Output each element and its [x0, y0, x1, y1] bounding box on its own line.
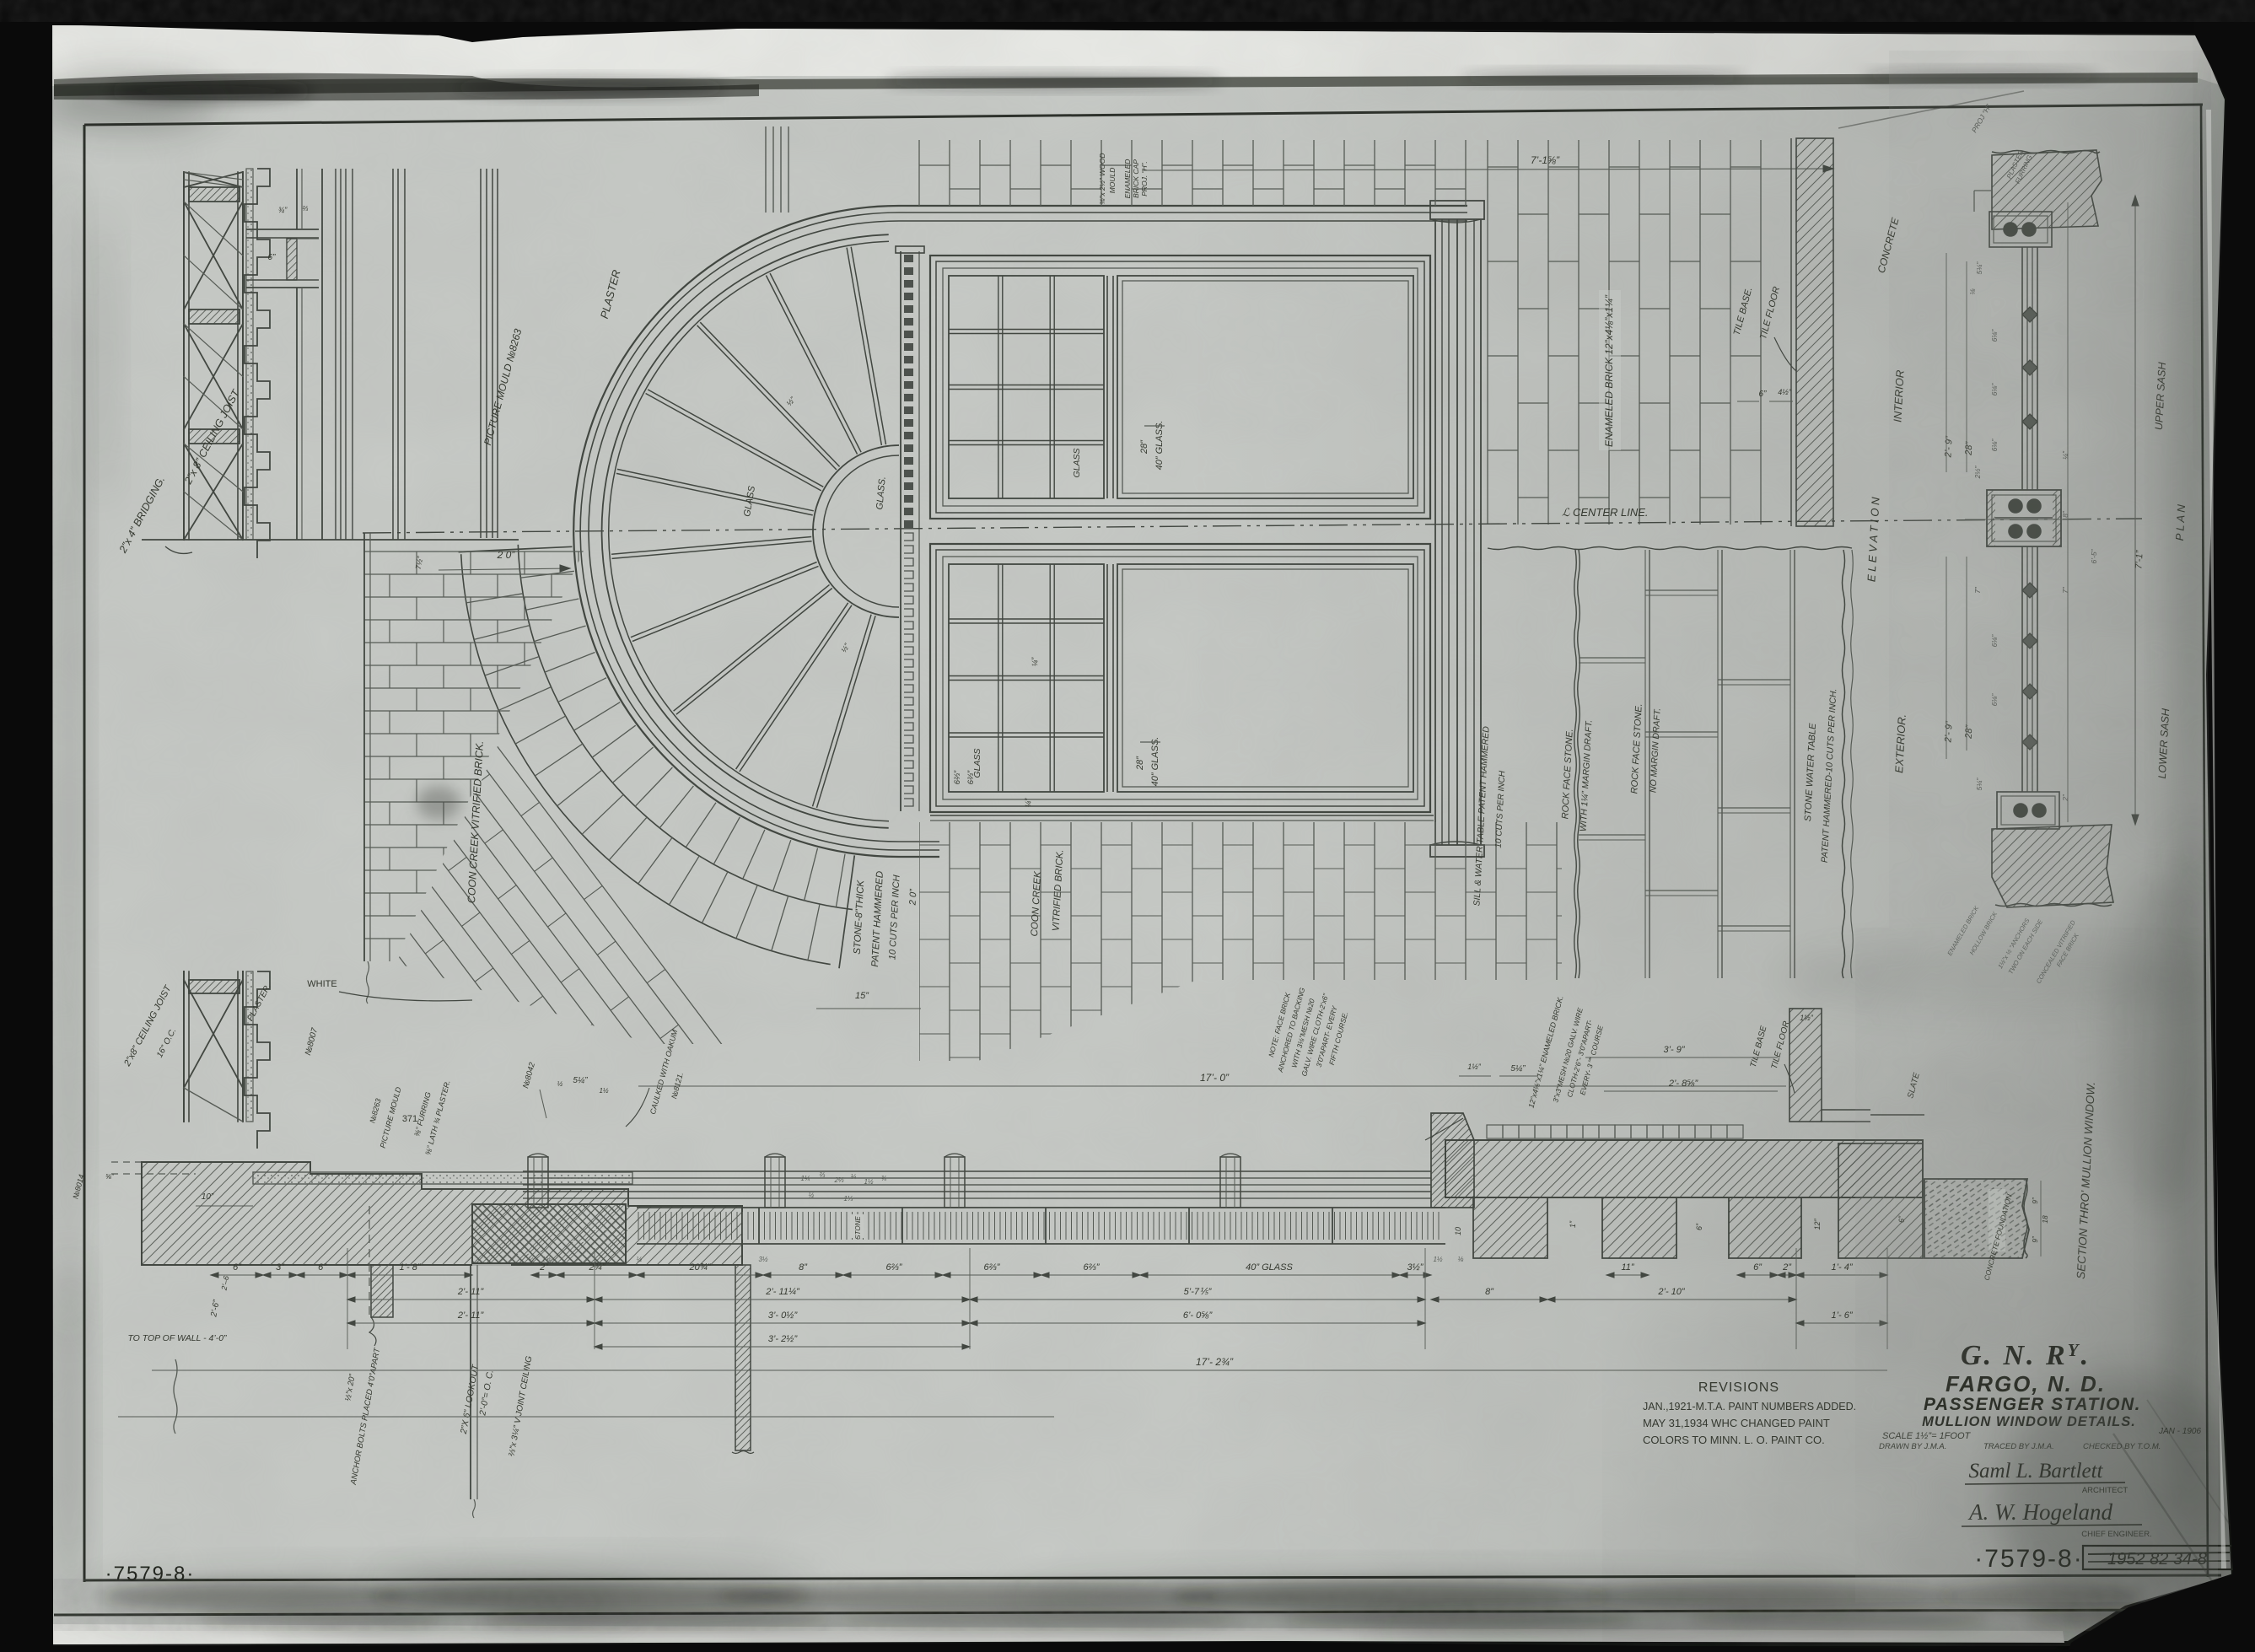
svg-text:1¼: 1¼	[800, 1175, 810, 1182]
svg-text:¼”: ¼”	[1031, 657, 1039, 667]
svg-text:GLASS: GLASS	[1072, 448, 1082, 477]
svg-text:¾: ¾	[881, 1175, 887, 1182]
svg-text:1’- 4”: 1’- 4”	[1831, 1262, 1853, 1273]
svg-text:1’- 8”: 1’- 8”	[399, 1262, 421, 1273]
svg-text:WHITE: WHITE	[307, 979, 336, 989]
svg-text:4½”: 4½”	[1778, 388, 1792, 396]
svg-text:½: ½	[809, 1192, 815, 1199]
svg-text:2’- 8⅝”: 2’- 8⅝”	[1668, 1079, 1699, 1089]
svg-text:2’- 10”: 2’- 10”	[1657, 1287, 1686, 1297]
svg-text:2 0”: 2 0”	[497, 549, 516, 561]
svg-text:PROJ. “H”.: PROJ. “H”.	[1140, 161, 1149, 196]
svg-text:2”: 2”	[1782, 1262, 1792, 1273]
svg-text:1⅓: 1⅓	[843, 1195, 853, 1203]
svg-text:28”: 28”	[1139, 439, 1149, 455]
svg-text:½: ½	[557, 1080, 563, 1088]
svg-text:BRICK CAP: BRICK CAP	[1132, 159, 1140, 198]
svg-text:3’- 9”: 3’- 9”	[1663, 1045, 1685, 1055]
svg-text:⅛: ⅛	[1458, 1256, 1464, 1263]
svg-text:1½: 1½	[599, 1087, 608, 1095]
svg-text:1½”: 1½”	[1800, 1014, 1814, 1022]
svg-text:ENAMELED: ENAMELED	[1123, 159, 1132, 199]
svg-text:TO TOP OF WALL - 4’-0”: TO TOP OF WALL - 4’-0”	[127, 1333, 227, 1343]
svg-text:5’-7⅕”: 5’-7⅕”	[1184, 1287, 1213, 1297]
svg-text:1’- 6”: 1’- 6”	[1831, 1310, 1853, 1321]
svg-text:5¼”: 5¼”	[573, 1075, 588, 1085]
svg-text:½: ½	[529, 1256, 535, 1263]
svg-text:COLORS TO MINN. L. O. PAINT C: COLORS TO MINN. L. O. PAINT CO.	[1643, 1434, 1825, 1446]
svg-text:6”: 6”	[1753, 1262, 1763, 1273]
svg-text:ℒ CENTER LINE.: ℒ CENTER LINE.	[1562, 506, 1649, 519]
svg-text:6⅔”: 6⅔”	[886, 1262, 903, 1273]
svg-text:11”: 11”	[1621, 1262, 1634, 1273]
svg-text:3’- 0½”: 3’- 0½”	[768, 1310, 799, 1321]
svg-text:5¼”: 5¼”	[1510, 1063, 1526, 1074]
svg-text:12”: 12”	[1813, 1218, 1822, 1230]
svg-text:6⅔”: 6⅔”	[1084, 1262, 1101, 1273]
svg-text:⅜”x 2½” WOOD: ⅜”x 2½” WOOD	[1098, 153, 1106, 205]
svg-text:6⅔”: 6⅔”	[953, 770, 962, 784]
svg-text:3½”: 3½”	[1407, 1262, 1424, 1273]
svg-text:6’- 0⅝”: 6’- 0⅝”	[1183, 1310, 1214, 1321]
svg-text:STONE: STONE	[854, 1216, 862, 1240]
svg-text:15”: 15”	[855, 991, 869, 1001]
svg-text:2’- 11¼”: 2’- 11¼”	[765, 1287, 800, 1297]
svg-text:JAN.,1921-M.T.A. PAINT NUMBERS: JAN.,1921-M.T.A. PAINT NUMBERS ADDED.	[1643, 1401, 1856, 1413]
svg-text:⅔: ⅔	[820, 1171, 826, 1179]
svg-text:¼”: ¼”	[1024, 798, 1032, 808]
svg-text:1½: 1½	[864, 1178, 873, 1186]
svg-text:1⅝: 1⅝	[541, 1256, 551, 1263]
svg-text:17’- 0”: 17’- 0”	[1200, 1072, 1230, 1084]
svg-text:8”: 8”	[799, 1262, 808, 1273]
svg-text:MAY 31,1934 WHC CHANGED PAIN: MAY 31,1934 WHC CHANGED PAINT	[1643, 1417, 1830, 1429]
svg-text:8”: 8”	[1485, 1287, 1494, 1297]
svg-text:1½”: 1½”	[1467, 1063, 1482, 1071]
svg-text:¾”: ¾”	[278, 206, 288, 214]
svg-text:⅔: ⅔	[303, 205, 309, 213]
svg-text:6”: 6”	[1695, 1223, 1703, 1230]
svg-text:6⅔”: 6⅔”	[984, 1262, 1001, 1273]
svg-text:17’- 2¾”: 17’- 2¾”	[1196, 1356, 1234, 1368]
svg-text:10: 10	[1454, 1227, 1462, 1235]
svg-text:2¾”: 2¾”	[589, 1262, 606, 1273]
svg-text:20¾”: 20¾”	[688, 1262, 711, 1273]
svg-text:REVISIONS: REVISIONS	[1698, 1380, 1779, 1395]
svg-text:¼: ¼	[851, 1173, 857, 1181]
svg-text:3½: 3½	[758, 1256, 767, 1263]
svg-text:6”: 6”	[268, 253, 277, 262]
svg-text:6”: 6”	[1759, 390, 1768, 399]
svg-text:2”: 2”	[539, 1262, 549, 1273]
svg-text:ENAMELED BRICK 12”x4⅛”x1¼”: ENAMELED BRICK 12”x4⅛”x1¼”	[1603, 294, 1615, 447]
svg-text:1”: 1”	[1569, 1220, 1577, 1228]
svg-text:40” GLASS.: 40” GLASS.	[1154, 421, 1165, 471]
svg-text:3’- 2½”: 3’- 2½”	[768, 1334, 799, 1344]
svg-text:2’- 11”: 2’- 11”	[457, 1310, 485, 1321]
svg-text:MOULD: MOULD	[1108, 168, 1117, 194]
svg-text:40” GLASS: 40” GLASS	[1246, 1262, 1293, 1273]
svg-text:2⅔: 2⅔	[833, 1176, 843, 1184]
svg-text:3”: 3”	[276, 1262, 285, 1273]
svg-text:6⅔”: 6⅔”	[966, 770, 976, 784]
svg-text:6”: 6”	[318, 1262, 327, 1273]
svg-text:6”: 6”	[233, 1262, 242, 1273]
svg-text:40” GLASS.: 40” GLASS.	[1150, 737, 1160, 787]
svg-text:2’- 11”: 2’- 11”	[457, 1287, 485, 1297]
svg-text:28”: 28”	[1135, 756, 1145, 771]
svg-text:2 0”: 2 0”	[907, 888, 918, 907]
svg-text:7’-1⅝”: 7’-1⅝”	[1531, 154, 1560, 166]
svg-text:½: ½	[637, 1256, 643, 1263]
svg-text:1½: 1½	[1433, 1256, 1442, 1263]
